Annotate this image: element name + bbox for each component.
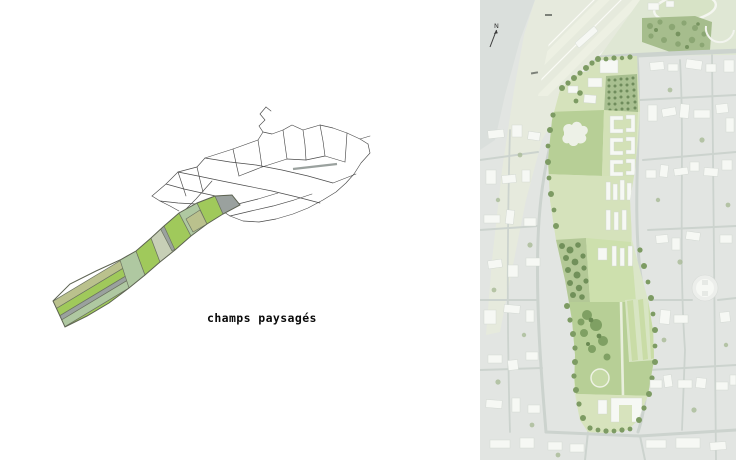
- parcel-diagram: [0, 0, 480, 460]
- circle-lawn: [591, 369, 609, 387]
- masterplan-map: N: [480, 0, 736, 460]
- orchard-grove: [604, 74, 638, 112]
- grey-road-fragment: [293, 164, 337, 169]
- north-label: N: [494, 22, 499, 30]
- street-network-lines: [152, 107, 370, 222]
- presentation-board: { "window": { "width": 736, "height": 46…: [0, 0, 736, 460]
- masterplan-panel: N: [480, 0, 736, 460]
- diagram-caption: champs paysagés: [207, 311, 347, 325]
- housing-meanders: [602, 110, 638, 177]
- great-lawn: [544, 110, 604, 176]
- concept-diagram-panel: champs paysagés: [0, 0, 480, 460]
- round-courtyard-building: [692, 275, 718, 301]
